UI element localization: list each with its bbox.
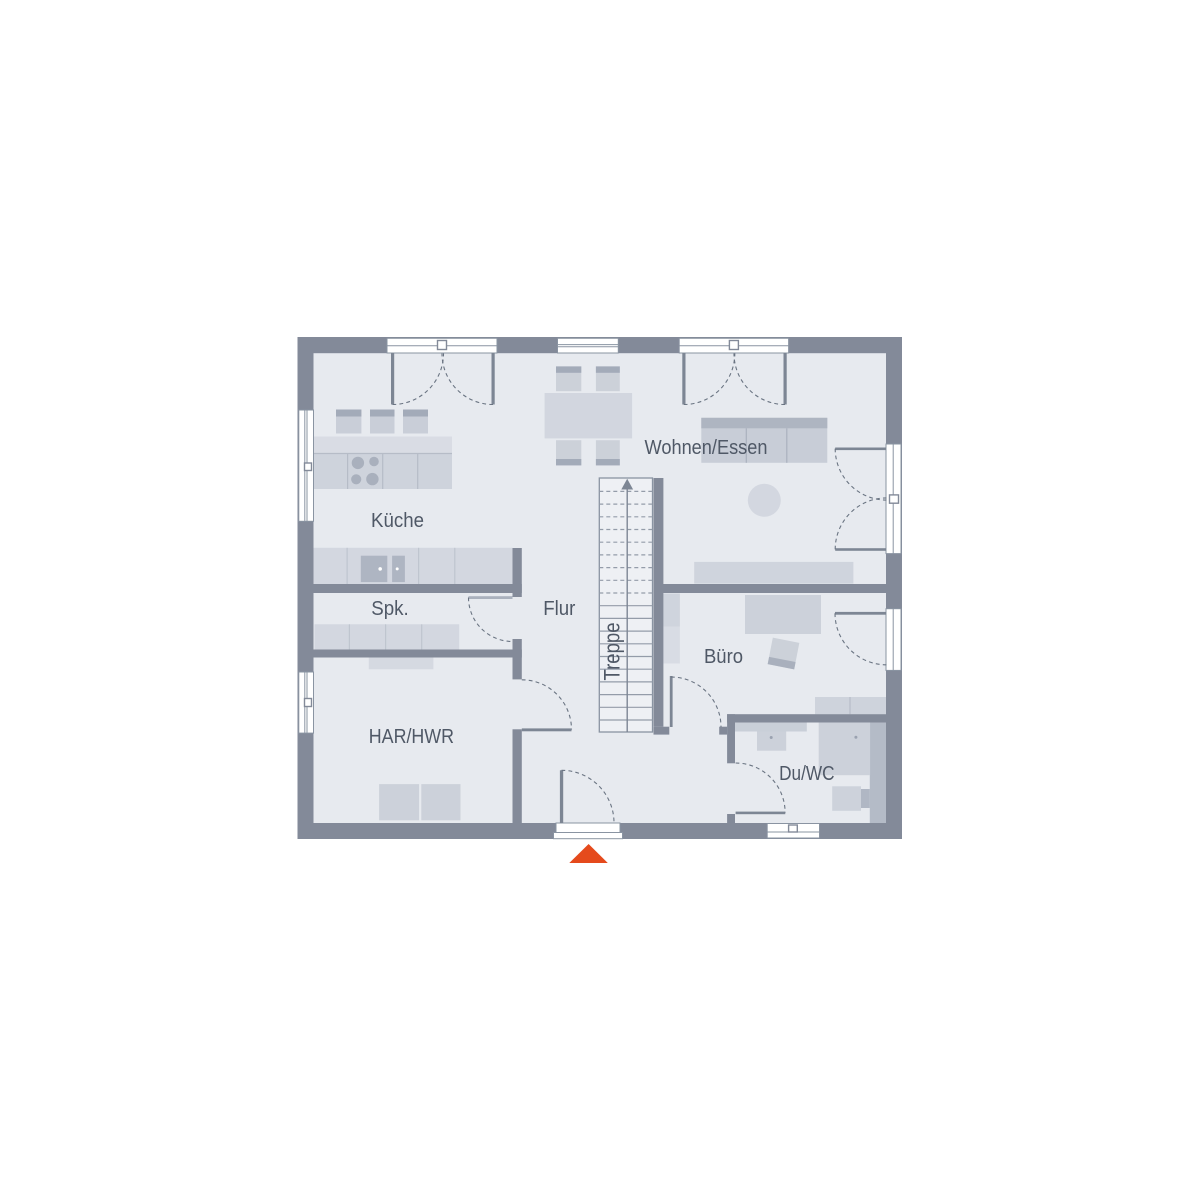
- svg-text:Du/WC: Du/WC: [779, 762, 835, 785]
- svg-text:Küche: Küche: [371, 509, 424, 532]
- svg-text:Spk.: Spk.: [371, 597, 409, 620]
- svg-text:HAR/HWR: HAR/HWR: [369, 725, 454, 748]
- svg-text:Büro: Büro: [704, 645, 743, 668]
- svg-text:Flur: Flur: [543, 597, 575, 620]
- svg-text:Wohnen/Essen: Wohnen/Essen: [645, 436, 768, 459]
- svg-text:Treppe: Treppe: [600, 623, 625, 681]
